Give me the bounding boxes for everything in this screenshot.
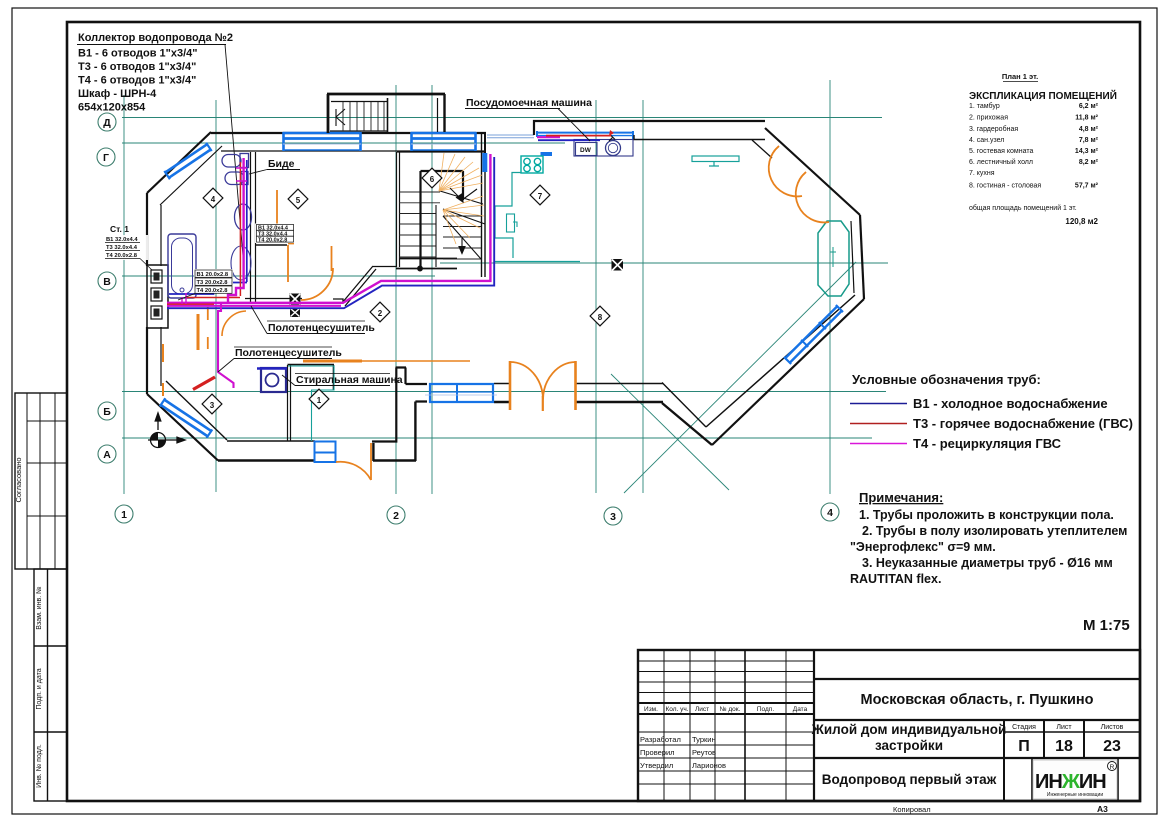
svg-text:7. кухня: 7. кухня [969,170,995,177]
svg-text:Лист: Лист [695,706,709,713]
svg-text:1. тамбур: 1. тамбур [969,102,1000,110]
svg-text:№ док.: № док. [720,706,741,713]
svg-text:Стиральная машина: Стиральная машина [296,374,403,386]
svg-text:654х120х854: 654х120х854 [78,102,146,114]
svg-text:2. прихожая: 2. прихожая [969,115,1008,122]
svg-text:Разработал: Разработал [640,735,681,744]
svg-text:Коллектор водопровода №2: Коллектор водопровода №2 [78,32,233,44]
svg-text:6. лестничный холл: 6. лестничный холл [969,158,1033,166]
svg-text:Копировал: Копировал [893,805,931,814]
svg-text:3. гардеробная: 3. гардеробная [969,125,1018,133]
svg-text:Ларионов: Ларионов [692,761,726,770]
svg-text:Жилой дом индивидуальной: Жилой дом индивидуальной [811,722,1007,737]
svg-text:"Энергофлекс" σ=9 мм.: "Энергофлекс" σ=9 мм. [850,540,996,554]
svg-text:А: А [103,449,111,461]
svg-text:Полотенцесушитель: Полотенцесушитель [235,347,342,359]
svg-text:7: 7 [538,192,543,201]
svg-text:2. Трубы в полу изолировать ут: 2. Трубы в полу изолировать утеплителем [862,524,1127,538]
svg-text:Кол. уч.: Кол. уч. [665,706,688,713]
svg-text:23: 23 [1103,738,1121,755]
svg-text:Биде: Биде [268,158,295,170]
svg-text:Реутов: Реутов [692,748,716,757]
svg-text:8,2 м²: 8,2 м² [1079,159,1099,166]
svg-text:8. гостиная - столовая: 8. гостиная - столовая [969,183,1041,190]
svg-text:В1 - 6 отводов 1"х3/4": В1 - 6 отводов 1"х3/4" [78,48,198,60]
svg-text:В1 32.0х4.4: В1 32.0х4.4 [106,237,138,243]
svg-text:Лист: Лист [1056,724,1072,731]
svg-text:ИНЖИН: ИНЖИН [1035,771,1106,793]
svg-text:120,8 м2: 120,8 м2 [1065,217,1098,226]
svg-text:П: П [1018,738,1030,755]
svg-text:3. Неуказанные диаметры труб -: 3. Неуказанные диаметры труб - Ø16 мм [862,556,1113,570]
svg-text:6,2 м²: 6,2 м² [1079,103,1099,110]
svg-text:Московская область, г. Пушкино: Московская область, г. Пушкино [860,692,1093,708]
svg-text:1: 1 [317,396,322,405]
svg-text:Б: Б [103,406,111,418]
svg-text:1. Трубы проложить в конструкц: 1. Трубы проложить в конструкции пола. [859,508,1114,522]
svg-text:Т3 - 6 отводов 1"х3/4": Т3 - 6 отводов 1"х3/4" [78,61,196,73]
svg-text:2: 2 [378,309,383,318]
svg-text:Т4 - рециркуляция ГВС: Т4 - рециркуляция ГВС [913,436,1062,451]
svg-text:11,8 м²: 11,8 м² [1075,115,1098,122]
svg-text:Посудомоечная машина: Посудомоечная машина [466,97,592,109]
svg-text:А3: А3 [1097,804,1108,814]
svg-text:R: R [1110,764,1115,771]
svg-text:Т3 32.0х4.4: Т3 32.0х4.4 [106,245,138,251]
svg-text:общая площадь помещений 1 эт.: общая площадь помещений 1 эт. [969,204,1077,212]
svg-text:Г: Г [103,152,109,164]
svg-text:Условные обозначения труб:: Условные обозначения труб: [852,372,1041,387]
svg-text:2: 2 [393,510,399,522]
svg-text:Изм.: Изм. [644,706,658,713]
svg-text:Т4 20.0х2.8: Т4 20.0х2.8 [106,253,138,259]
svg-text:Инженерные инновации: Инженерные инновации [1047,792,1103,798]
svg-text:Т4 - 6 отводов 1"х3/4": Т4 - 6 отводов 1"х3/4" [78,75,196,87]
svg-text:Водопровод первый этаж: Водопровод первый этаж [822,772,997,787]
svg-text:4: 4 [827,507,833,519]
svg-text:Д: Д [103,117,111,129]
svg-text:3: 3 [210,401,215,410]
svg-text:В: В [103,276,111,288]
svg-text:ЭКСПЛИКАЦИЯ ПОМЕЩЕНИЙ: ЭКСПЛИКАЦИЯ ПОМЕЩЕНИЙ [969,89,1117,102]
svg-text:В1 - холодное водоснабжение: В1 - холодное водоснабжение [913,396,1108,411]
svg-text:М 1:75: М 1:75 [1083,617,1130,634]
svg-text:4. сан.узел: 4. сан.узел [969,137,1004,144]
svg-text:Ст. 1: Ст. 1 [110,224,129,234]
svg-text:Инв. № подл.: Инв. № подл. [36,744,43,788]
svg-text:застройки: застройки [875,738,943,753]
svg-text:4,8 м²: 4,8 м² [1079,126,1099,133]
svg-text:Примечания:: Примечания: [859,490,943,505]
svg-text:57,7 м²: 57,7 м² [1075,183,1099,190]
svg-text:7,8 м²: 7,8 м² [1079,137,1099,144]
svg-text:8: 8 [598,313,603,322]
svg-text:Шкаф - ШРН-4: Шкаф - ШРН-4 [78,88,157,100]
svg-text:Полотенцесушитель: Полотенцесушитель [268,322,375,334]
svg-text:Подп.: Подп. [757,706,774,713]
svg-text:Утвердил: Утвердил [640,761,673,770]
svg-text:Т3 - горячее водоснабжение (ГВ: Т3 - горячее водоснабжение (ГВС) [913,416,1133,431]
svg-text:6: 6 [430,175,435,184]
svg-text:5. гостевая комната: 5. гостевая комната [969,148,1033,155]
svg-text:RAUTITAN flex.: RAUTITAN flex. [850,572,941,586]
svg-text:Взам. инв. №: Взам. инв. № [36,586,43,629]
svg-text:3: 3 [610,511,616,523]
svg-text:1: 1 [121,509,127,521]
svg-text:4: 4 [211,195,216,204]
svg-text:Проверил: Проверил [640,748,675,757]
svg-text:Согласовано: Согласовано [14,457,23,502]
svg-text:Подп. и дата: Подп. и дата [36,668,43,709]
svg-text:Стадия: Стадия [1012,724,1036,731]
svg-text:5: 5 [296,196,301,205]
svg-text:14,3 м²: 14,3 м² [1075,148,1099,155]
svg-text:Туркин: Туркин [692,735,716,744]
svg-text:План 1 эт.: План 1 эт. [1002,72,1038,81]
svg-text:Дата: Дата [793,706,808,713]
svg-text:18: 18 [1055,738,1073,755]
svg-text:Листов: Листов [1101,724,1124,731]
svg-text:DW: DW [580,147,592,154]
